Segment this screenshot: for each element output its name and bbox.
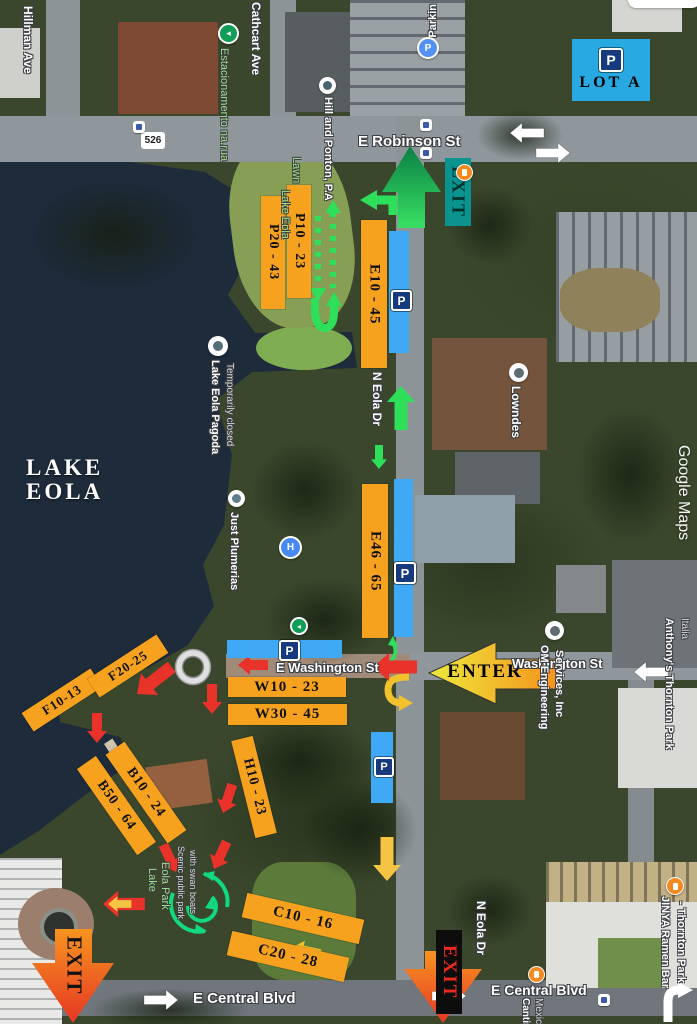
poi-estacionamento[interactable]: Estacionamento na.rua [218, 48, 230, 161]
exit-up-arrow [382, 146, 441, 228]
street-label-hillman: Hillman Ave [21, 6, 35, 74]
pin-dot [550, 626, 560, 636]
street-label-cathcart: Cathcart Ave [249, 2, 263, 75]
park-label-1: Lake [146, 868, 158, 892]
parking-sign-letter: P [380, 761, 387, 773]
section-label: W10 - 23 [254, 679, 320, 696]
section-bar-W10: W10 - 23 [228, 677, 346, 697]
poi-lowndes[interactable]: Lowndes [509, 386, 523, 438]
parking-sign: P [374, 757, 394, 777]
section-bar-E46: E46 - 65 [362, 484, 388, 638]
poi-jinya-2[interactable]: - Thornton Park [675, 901, 687, 983]
green-parking-pin[interactable]: ◂ [290, 617, 308, 635]
white-turn-arrow [668, 982, 693, 1022]
street-label-eola-bottom: N Eola Dr [474, 901, 488, 955]
yellow-down-arrow [373, 837, 401, 881]
lot-a-box: P LOT A [572, 39, 650, 101]
park-sub-2: with swan boats [188, 850, 198, 914]
red-arrow-down [87, 713, 107, 743]
street-label-robinson: E Robinson St [358, 133, 461, 150]
red-arrow-down [213, 781, 241, 816]
pin-glyph [462, 169, 467, 176]
pin-glyph: ◂ [297, 622, 301, 631]
parking-sign-letter: P [401, 566, 410, 581]
poi-cantina-1[interactable]: Cantina [520, 998, 531, 1024]
poi-pin[interactable] [228, 490, 245, 507]
pin-dot [232, 494, 241, 503]
pin-glyph: P [425, 43, 432, 54]
street-label-central-left: E Central Blvd [193, 990, 296, 1007]
hospital-icon[interactable]: H [279, 536, 302, 559]
lot-a-label: LOT A [579, 74, 642, 92]
poi-pagoda-status: Temporarily closed [224, 363, 235, 446]
pin-dot [514, 368, 524, 378]
google-maps-watermark: Google Maps [674, 445, 692, 540]
white-arrow-right [144, 990, 178, 1010]
pin-glyph: H [287, 542, 294, 553]
restaurant-pin[interactable] [666, 877, 684, 895]
parking-sign: P [279, 640, 300, 661]
street-label-washington-park: E Washington St [276, 660, 379, 675]
poi-parking-garage[interactable]: Parkin [427, 4, 439, 38]
parking-sign: P [391, 290, 412, 311]
transit-stop-icon[interactable] [598, 994, 610, 1006]
route-arrows-layer [0, 0, 697, 1024]
section-label: E46 - 65 [367, 531, 384, 592]
pin-glyph [673, 883, 678, 890]
lake-name-line1: LAKE [26, 456, 103, 480]
turn-left-arrow [360, 190, 393, 215]
pin-glyph: ◂ [226, 28, 231, 39]
red-arrow-left [238, 655, 268, 675]
poi-pin[interactable] [545, 621, 564, 640]
poi-just-plumerias[interactable]: Just Plumerias [228, 512, 240, 590]
section-label: P10 - 23 [291, 213, 307, 269]
pin-dot [323, 81, 332, 90]
park-sub-1: Scenic public park [176, 846, 186, 919]
transit-stop-icon[interactable] [133, 121, 145, 133]
section-label: W30 - 45 [255, 706, 321, 723]
parking-sign-letter: P [397, 294, 405, 308]
section-bar-E10: E10 - 45 [361, 220, 387, 368]
section-label: E10 - 45 [366, 264, 383, 325]
curve-up-arrow [388, 636, 398, 664]
parking-sign: P [599, 48, 623, 72]
white-arrow-right [536, 143, 570, 163]
lake-name-line2: EOLA [26, 480, 103, 504]
poi-om-engineering-1[interactable]: OM Engineering [538, 645, 550, 729]
roundabout [176, 650, 211, 685]
dotted-route-arrows [310, 200, 341, 301]
poi-anthonys-sub: Italia [679, 618, 690, 639]
circular-arrowhead [201, 869, 215, 881]
south-down-arrow [371, 445, 387, 469]
blue-parking-pin[interactable]: P [417, 37, 439, 59]
exit-bottom-left-label: EXIT [59, 932, 89, 1000]
pin-glyph [534, 971, 539, 978]
route-shield-number: 526 [145, 135, 162, 146]
north-up-arrow [387, 386, 415, 430]
pin-dot [213, 341, 223, 351]
parking-sign: P [394, 562, 416, 584]
poi-om-engineering-2[interactable]: Services, Inc [553, 650, 565, 717]
poi-pin[interactable] [509, 363, 528, 382]
poi-jinya-1[interactable]: JINYA Ramen Bar [659, 896, 671, 988]
parking-strip [394, 479, 413, 637]
poi-pagoda[interactable]: Lake Eola Pagoda [209, 360, 221, 454]
transit-stop-icon[interactable] [420, 147, 432, 159]
restaurant-pin[interactable] [456, 164, 473, 181]
satellite-map: P P P P P LOT A P20 - 43 P10 - 23 E10 - … [0, 0, 697, 1024]
red-arrow-down [205, 838, 236, 874]
white-arrow-left [510, 123, 544, 143]
park-label-lawn-2: Lawn [290, 157, 302, 183]
poi-hill-ponton[interactable]: Hill and Ponton, P.A [322, 97, 334, 201]
street-label-eola-top: N Eola Dr [370, 372, 384, 426]
map-ui-pill[interactable] [628, 0, 697, 8]
lake-name: LAKE EOLA [26, 456, 103, 504]
section-bar-W30: W30 - 45 [228, 704, 347, 725]
poi-pin[interactable] [319, 77, 336, 94]
poi-cantina-2: Mexican [533, 998, 544, 1024]
poi-anthonys[interactable]: Anthony's Thornton Park [663, 618, 675, 750]
route-shield-526: 526 [141, 132, 165, 149]
exit-bottom-mid-label: EXIT [436, 930, 462, 1014]
yellow-u-turn-arrow [388, 677, 413, 711]
red-arrow-down [202, 684, 222, 714]
street-label-central-right: E Central Blvd [491, 982, 587, 998]
parking-sign-letter: P [285, 644, 293, 658]
transit-stop-icon[interactable] [420, 119, 432, 131]
green-parking-pin[interactable]: ◂ [218, 23, 239, 44]
park-label-2: Eola Park [159, 862, 171, 910]
pagoda-icon[interactable] [208, 336, 228, 356]
parking-sign-letter: P [606, 52, 615, 68]
park-label-lawn-1: Lake Eola [279, 190, 291, 239]
circular-arrowhead [194, 924, 208, 936]
restaurant-pin[interactable] [528, 966, 545, 983]
